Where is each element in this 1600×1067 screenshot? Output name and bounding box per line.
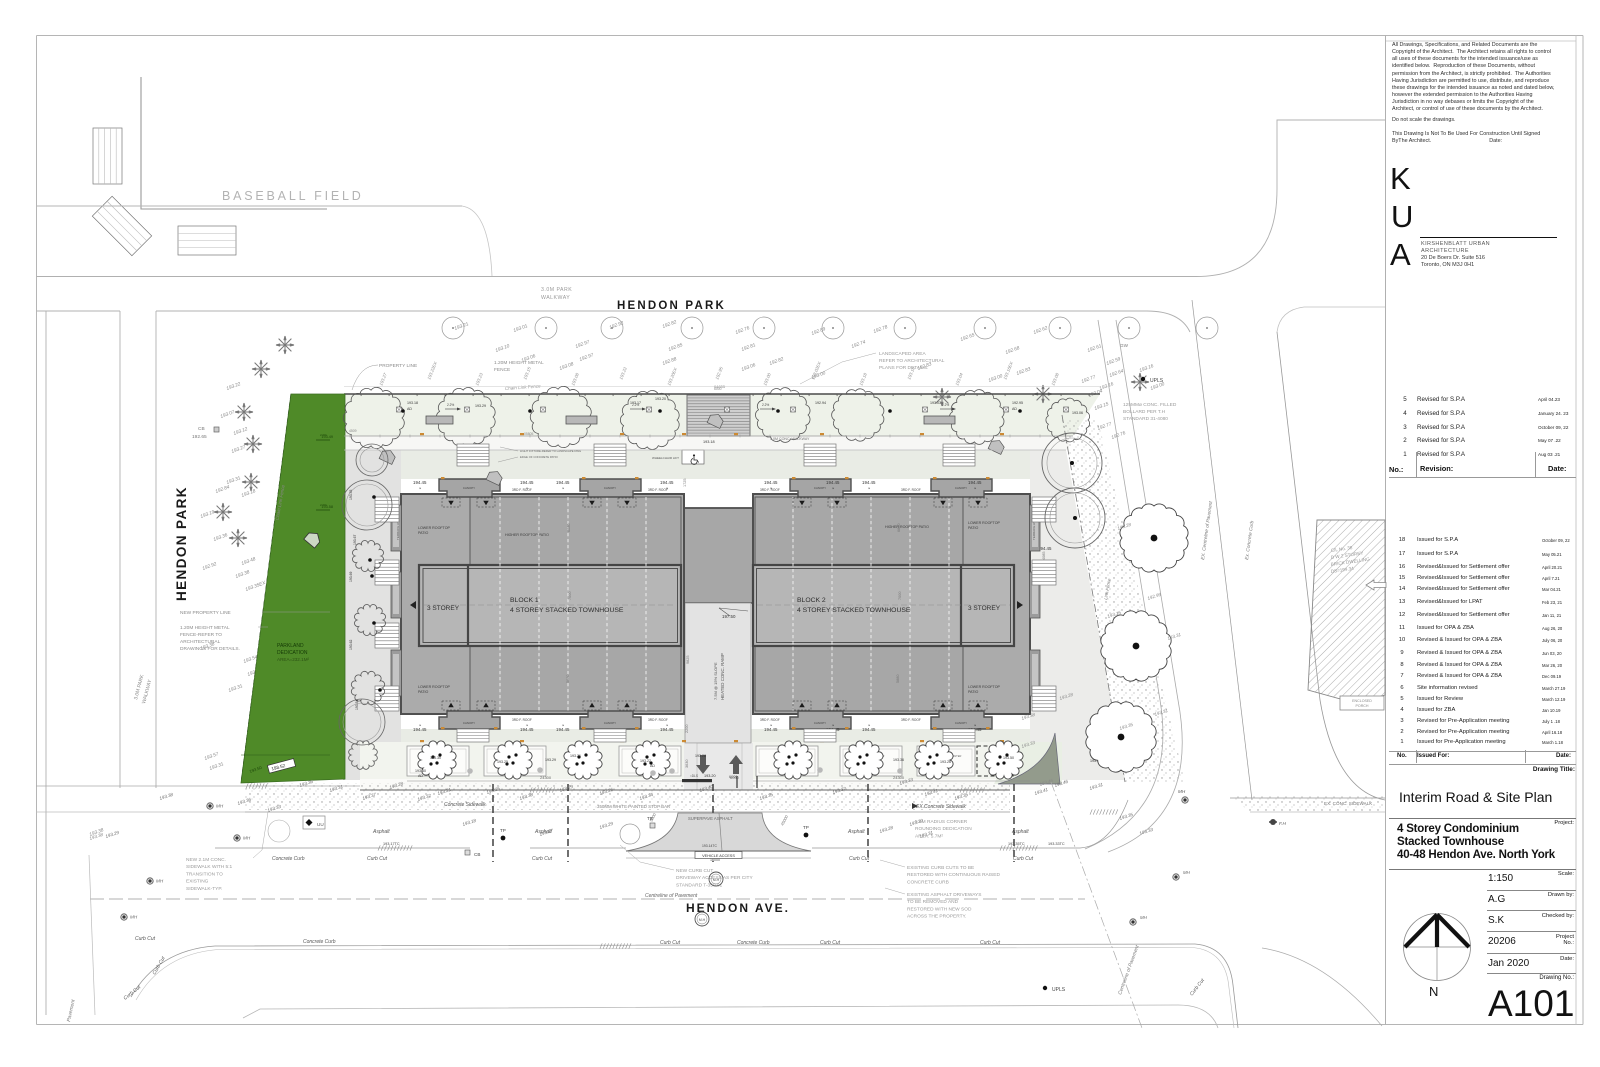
svg-text:UU: UU xyxy=(317,822,324,827)
svg-text:3RD F. ROOF: 3RD F. ROOF xyxy=(901,718,921,722)
svg-text:MH: MH xyxy=(243,836,251,841)
svg-text:4085: 4085 xyxy=(1042,552,1046,560)
svg-text:5880: 5880 xyxy=(896,675,900,683)
svg-text:Curb Cut: Curb Cut xyxy=(123,984,143,1001)
svg-text:3RD F. ROOF: 3RD F. ROOF xyxy=(648,488,668,492)
svg-text:192.92: 192.92 xyxy=(609,320,625,331)
svg-text:193.35EX: 193.35EX xyxy=(245,580,268,593)
svg-text:2200: 2200 xyxy=(685,725,689,733)
svg-text:PARKLAND: PARKLAND xyxy=(277,643,304,649)
svg-text:193.03: 193.03 xyxy=(930,401,941,405)
svg-text:CB: CB xyxy=(474,852,480,857)
svg-text:EDGE OF CONCRETE PATIO: EDGE OF CONCRETE PATIO xyxy=(520,455,559,459)
svg-text:Curb Cut: Curb Cut xyxy=(660,940,681,946)
svg-text:193.27: 193.27 xyxy=(378,372,388,387)
svg-text:194.45: 194.45 xyxy=(862,727,876,732)
svg-text:MH: MH xyxy=(130,915,138,920)
svg-text:5.0M RADIUS CORNER: 5.0M RADIUS CORNER xyxy=(915,819,968,825)
svg-text:193.22: 193.22 xyxy=(226,381,242,392)
svg-text:3 STOREY: 3 STOREY xyxy=(427,605,460,612)
svg-text:192.82: 192.82 xyxy=(662,319,678,330)
svg-text:193.31: 193.31 xyxy=(226,475,242,486)
svg-text:PLANS FOR DETAILS.: PLANS FOR DETAILS. xyxy=(879,365,929,371)
svg-text:193.57: 193.57 xyxy=(204,751,220,762)
svg-text:REFER TO ARCHITECTURAL: REFER TO ARCHITECTURAL xyxy=(879,358,945,364)
svg-text:192.65: 192.65 xyxy=(960,332,976,343)
svg-text:193.08: 193.08 xyxy=(570,372,580,387)
svg-text:192.77: 192.77 xyxy=(1081,374,1097,385)
svg-text:193.3​8: 193.3​8 xyxy=(159,792,174,801)
svg-text:6000: 6000 xyxy=(714,387,722,391)
svg-text:193.35: 193.35 xyxy=(1119,812,1134,821)
svg-text:24300: 24300 xyxy=(540,775,552,780)
svg-text:192.95: 192.95 xyxy=(1012,401,1023,405)
svg-text:193.12: 193.12 xyxy=(233,426,249,437)
svg-text:ARCHITECTURAL: ARCHITECTURAL xyxy=(180,639,221,645)
svg-text:192.97: 192.97 xyxy=(575,339,591,350)
svg-text:EXISTING CURB CUTS TO BE: EXISTING CURB CUTS TO BE xyxy=(907,865,974,871)
svg-text:CONCRETE CURB: CONCRETE CURB xyxy=(907,879,949,885)
svg-text:2.2%: 2.2% xyxy=(942,403,949,407)
svg-text:2.2%: 2.2% xyxy=(762,403,769,407)
svg-text:193.20: 193.20 xyxy=(655,397,666,401)
svg-text:1725: 1725 xyxy=(683,479,687,487)
svg-text:193.29: 193.29 xyxy=(599,821,614,830)
svg-text:6880: 6880 xyxy=(897,524,901,532)
svg-text:193.31: 193.31 xyxy=(209,761,225,772)
svg-text:194.45: 194.45 xyxy=(520,727,534,732)
svg-text:NEW CURB CUT: NEW CURB CUT xyxy=(676,868,713,874)
svg-text:193.55: 193.55 xyxy=(349,490,353,500)
svg-text:PORCH: PORCH xyxy=(1356,704,1369,708)
svg-text:BLOCK 1: BLOCK 1 xyxy=(510,597,539,604)
svg-text:193.31: 193.31 xyxy=(1167,632,1182,641)
svg-text:LOWER ROOFTOP: LOWER ROOFTOP xyxy=(968,685,1000,689)
svg-text:193.18: 193.18 xyxy=(241,488,257,499)
svg-text:193.29: 193.29 xyxy=(475,404,486,408)
svg-text:RESTORED WITH NEW SOD: RESTORED WITH NEW SOD xyxy=(907,906,972,912)
svg-text:3RD F. ROOF: 3RD F. ROOF xyxy=(901,488,921,492)
svg-text:193.30: 193.30 xyxy=(415,769,426,773)
svg-text:6000: 6000 xyxy=(730,775,740,780)
svg-text:350MM WHITE PAINTED STOP BAR: 350MM WHITE PAINTED STOP BAR xyxy=(597,804,670,809)
svg-text:LOWER ROOFTOP: LOWER ROOFTOP xyxy=(418,685,450,689)
svg-text:Curb Cut: Curb Cut xyxy=(367,856,388,862)
svg-text:PATIO: PATIO xyxy=(968,526,978,530)
svg-text:193.08: 193.08 xyxy=(559,361,575,372)
svg-text:TO BE REMOVED AND: TO BE REMOVED AND xyxy=(907,899,959,905)
svg-text:193.48: 193.48 xyxy=(241,556,257,567)
svg-text:Asphalt: Asphalt xyxy=(847,829,865,835)
svg-text:Curb Cut: Curb Cut xyxy=(152,955,168,976)
svg-text:HIGHER ROOFTOP PATIO: HIGHER ROOFTOP PATIO xyxy=(885,525,929,529)
svg-text:192.61: 192.61 xyxy=(1087,343,1103,354)
svg-text:2.2%: 2.2% xyxy=(632,403,639,407)
svg-text:5880: 5880 xyxy=(566,675,570,683)
svg-text:125MMø CONC. FILLED: 125MMø CONC. FILLED xyxy=(1123,402,1177,408)
svg-text:193.22: 193.22 xyxy=(618,366,628,381)
svg-text:193.25: 193.25 xyxy=(497,760,508,764)
svg-text:193.18: 193.18 xyxy=(462,818,477,827)
svg-text:45000: 45000 xyxy=(779,814,789,827)
svg-text:194.45: 194.45 xyxy=(968,480,982,485)
svg-text:UPLS: UPLS xyxy=(1150,378,1164,384)
svg-text:4509: 4509 xyxy=(349,429,357,433)
svg-text:192.84: 192.84 xyxy=(215,484,231,495)
svg-text:193.31: 193.31 xyxy=(228,683,244,694)
svg-text:193.69: 193.69 xyxy=(349,572,353,582)
svg-text:192.99: 192.99 xyxy=(1147,592,1162,601)
svg-text:VEHICLE ACCESS: VEHICLE ACCESS xyxy=(702,854,735,858)
svg-text:193.36: 193.36 xyxy=(213,532,229,543)
svg-text:194.45: 194.45 xyxy=(520,480,534,485)
svg-text:Centreline of Pavement: Centreline of Pavement xyxy=(645,893,698,899)
svg-text:193.01: 193.01 xyxy=(513,323,529,334)
svg-text:SIDEWALK-TYP.: SIDEWALK-TYP. xyxy=(186,886,222,892)
svg-text:SIDEWALK WITH 5:1: SIDEWALK WITH 5:1 xyxy=(186,864,233,870)
svg-text:DRAWINGS FOR DETAILS.: DRAWINGS FOR DETAILS. xyxy=(180,646,240,652)
svg-text:CANOPY: CANOPY xyxy=(604,486,616,490)
svg-text:194.45: 194.45 xyxy=(764,727,778,732)
svg-text:LOWER ROOFTOP: LOWER ROOFTOP xyxy=(418,526,450,530)
svg-text:194.45: 194.45 xyxy=(660,727,674,732)
svg-text:EXISTING ASPHALT DRIVEWAYS: EXISTING ASPHALT DRIVEWAYS xyxy=(907,892,981,898)
svg-text:193.20EX: 193.20EX xyxy=(666,367,678,386)
svg-text:HEATED CONC. RAMP: HEATED CONC. RAMP xyxy=(720,653,725,700)
svg-text:193.00: 193.00 xyxy=(762,372,772,387)
svg-text:194.45: 194.45 xyxy=(413,480,427,485)
svg-text:6880: 6880 xyxy=(567,524,571,532)
svg-text:193.31: 193.31 xyxy=(1089,782,1104,791)
svg-text:WHEELCHAIR LIFT: WHEELCHAIR LIFT xyxy=(652,456,679,460)
svg-text:7.5M @ 15% SLOPE: 7.5M @ 15% SLOPE xyxy=(713,662,718,700)
svg-text:TRANSITION TO: TRANSITION TO xyxy=(186,871,223,877)
svg-text:4 STOREY STACKED TOWNHOUSE: 4 STOREY STACKED TOWNHOUSE xyxy=(797,607,911,614)
svg-text:BOLLARD PER T.H: BOLLARD PER T.H xyxy=(1123,409,1166,415)
svg-text:AD: AD xyxy=(407,407,412,411)
svg-text:FENCE-REFER TO: FENCE-REFER TO xyxy=(180,632,222,638)
svg-text:CANOPY: CANOPY xyxy=(814,721,826,725)
svg-text:193.38: 193.38 xyxy=(235,569,251,580)
svg-text:193.19: 193.19 xyxy=(200,509,216,520)
svg-text:192.92: 192.92 xyxy=(202,561,218,572)
svg-text:Asphalt: Asphalt xyxy=(372,829,390,835)
svg-text:7000: 7000 xyxy=(568,592,572,600)
svg-text:HENDON PARK: HENDON PARK xyxy=(617,300,726,312)
svg-text:192.65: 192.65 xyxy=(192,434,207,440)
svg-text:3 STOREY: 3 STOREY xyxy=(968,605,1001,612)
svg-text:FENCE: FENCE xyxy=(494,367,510,373)
svg-text:193.06: 193.06 xyxy=(741,362,757,373)
svg-text:3.0M CONC. WALKWAY: 3.0M CONC. WALKWAY xyxy=(770,437,810,441)
svg-text:3RD F. ROOF: 3RD F. ROOF xyxy=(648,718,668,722)
svg-text:7000: 7000 xyxy=(898,592,902,600)
svg-text:192.95: 192.95 xyxy=(714,366,724,381)
svg-text:3RD F. ROOF: 3RD F. ROOF xyxy=(512,488,532,492)
svg-text:194.45: 194.45 xyxy=(556,727,570,732)
svg-text:CB: CB xyxy=(198,426,205,432)
svg-text:194.45: 194.45 xyxy=(862,480,876,485)
svg-text:MH: MH xyxy=(1140,915,1148,920)
svg-text:×: × xyxy=(562,486,565,491)
svg-text:194.45: 194.45 xyxy=(413,727,427,732)
svg-text:192.94: 192.94 xyxy=(815,401,826,405)
svg-text:UPLS: UPLS xyxy=(1052,987,1066,993)
svg-text:193.20: 193.20 xyxy=(704,774,716,778)
svg-text:CANOPY: CANOPY xyxy=(955,721,967,725)
svg-text:AD: AD xyxy=(650,764,655,768)
svg-text:EX. Centreline of Pavement: EX. Centreline of Pavement xyxy=(1200,500,1214,560)
svg-text:F.H: F.H xyxy=(1279,821,1286,826)
svg-text:192.74: 192.74 xyxy=(851,339,867,350)
svg-text:TB: TB xyxy=(647,816,653,821)
svg-text:Ex. Concrete Curb: Ex. Concrete Curb xyxy=(1244,520,1255,560)
svg-text:NEW 2.1M CONC.: NEW 2.1M CONC. xyxy=(186,857,226,863)
svg-text:193.35TC: 193.35TC xyxy=(1008,842,1025,846)
svg-text:ACROSS THE PROPERTY.: ACROSS THE PROPERTY. xyxy=(907,914,967,920)
svg-text:193.36: 193.36 xyxy=(893,758,904,762)
svg-text:194.45: 194.45 xyxy=(660,480,674,485)
svg-text:Concrete Curb: Concrete Curb xyxy=(272,856,305,862)
svg-text:GW: GW xyxy=(1120,343,1129,348)
svg-text:2.2%: 2.2% xyxy=(447,403,454,407)
svg-text:PATIO: PATIO xyxy=(968,690,978,694)
svg-text:LIGHT FIXTURE-REFER TO LANDSCA: LIGHT FIXTURE-REFER TO LANDSCAPE DWG xyxy=(520,449,581,453)
svg-text:×: × xyxy=(868,486,871,491)
svg-text:193.23: 193.23 xyxy=(474,372,484,387)
svg-text:MH: MH xyxy=(1183,870,1191,875)
svg-text:Curb Cut: Curb Cut xyxy=(849,856,870,862)
svg-text:Curb Cut: Curb Cut xyxy=(1013,856,1034,862)
svg-text:EX. CONC. SIDEWALK: EX. CONC. SIDEWALK xyxy=(1324,801,1373,806)
svg-text:BLOCK 2: BLOCK 2 xyxy=(797,597,826,604)
svg-text:193.18: 193.18 xyxy=(703,440,715,444)
svg-text:193.18: 193.18 xyxy=(407,401,418,405)
svg-text:193.21: 193.21 xyxy=(570,754,581,758)
svg-text:1.20M HEIGHT METAL: 1.20M HEIGHT METAL xyxy=(494,360,544,366)
svg-text:STANDARD T-350.01: STANDARD T-350.01 xyxy=(676,882,723,888)
svg-text:193.16EX: 193.16EX xyxy=(1002,361,1014,380)
svg-text:9825: 9825 xyxy=(686,656,690,664)
svg-text:CANOPY: CANOPY xyxy=(463,486,475,490)
svg-text:EXISTING: EXISTING xyxy=(186,879,209,885)
svg-text:193.28: 193.28 xyxy=(695,754,706,758)
svg-text:193.17TC: 193.17TC xyxy=(383,842,400,846)
svg-text:192.76: 192.76 xyxy=(1111,430,1127,441)
svg-text:192.88: 192.88 xyxy=(662,356,678,367)
svg-text:194.45: 194.45 xyxy=(556,480,570,485)
svg-text:197.50: 197.50 xyxy=(722,614,736,619)
svg-text:2.0%: 2.0% xyxy=(320,433,327,437)
svg-text:CANOPY: CANOPY xyxy=(463,721,475,725)
svg-text:Curb Cut: Curb Cut xyxy=(532,856,553,862)
svg-text:4 STOREY STACKED TOWNHOUSE: 4 STOREY STACKED TOWNHOUSE xyxy=(510,607,624,614)
svg-text:Curb Cut: Curb Cut xyxy=(135,936,156,942)
svg-text:AREA=232.1M²: AREA=232.1M² xyxy=(277,657,310,662)
svg-text:MH: MH xyxy=(1178,789,1186,794)
svg-text:LOWER ROOFTOP: LOWER ROOFTOP xyxy=(968,521,1000,525)
svg-text:Curb Cut: Curb Cut xyxy=(820,940,841,946)
svg-text:193.14TC: 193.14TC xyxy=(702,844,717,848)
svg-text:192.85: 192.85 xyxy=(668,342,684,353)
svg-text:EX.Concrete Sidewalk: EX.Concrete Sidewalk xyxy=(916,804,966,810)
svg-text:2.0%: 2.0% xyxy=(320,503,327,507)
svg-text:ENCLOSED: ENCLOSED xyxy=(1352,699,1372,703)
svg-text:AD: AD xyxy=(1012,407,1017,411)
svg-text:CANOPY: CANOPY xyxy=(955,486,967,490)
svg-text:192.78: 192.78 xyxy=(873,324,889,335)
svg-text:ROUNDING DEDICATION: ROUNDING DEDICATION xyxy=(915,826,972,832)
svg-text:193.04: 193.04 xyxy=(954,372,964,387)
svg-text:CANOPY: CANOPY xyxy=(814,486,826,490)
svg-text:192.81: 192.81 xyxy=(741,342,757,353)
svg-text:Concrete Sidewalk: Concrete Sidewalk xyxy=(444,802,486,808)
svg-text:193.07: 193.07 xyxy=(220,409,236,420)
svg-text:HIGHER ROOFTOP PATIO: HIGHER ROOFTOP PATIO xyxy=(505,533,549,537)
svg-text:TP: TP xyxy=(500,828,506,833)
svg-text:STANDARD 31-4080: STANDARD 31-4080 xyxy=(1123,416,1168,422)
svg-text:193.67: 193.67 xyxy=(353,535,357,545)
svg-text:193.22: 193.22 xyxy=(640,759,651,763)
svg-text:193.10: 193.10 xyxy=(495,343,511,354)
svg-text:SUPERPAVE ASPHALT: SUPERPAVE ASPHALT xyxy=(688,816,733,821)
svg-text:Curb Cut: Curb Cut xyxy=(980,940,1001,946)
svg-text:192.82: 192.82 xyxy=(769,356,785,367)
svg-text:DEDICATION: DEDICATION xyxy=(277,650,308,656)
svg-text:1.20M HEIGHT METAL: 1.20M HEIGHT METAL xyxy=(180,625,230,631)
svg-text:193.27: 193.27 xyxy=(231,444,247,455)
svg-text:193.22EX: 193.22EX xyxy=(426,361,438,380)
svg-text:Asphalt: Asphalt xyxy=(1011,829,1029,835)
svg-text:193.15: 193.15 xyxy=(522,366,532,381)
svg-text:WALKWAY: WALKWAY xyxy=(541,295,570,301)
svg-text:193.29: 193.29 xyxy=(105,830,120,839)
svg-text:PATIO: PATIO xyxy=(418,531,428,535)
svg-text:193.54: 193.54 xyxy=(355,700,359,710)
svg-text:Concrete Curb: Concrete Curb xyxy=(303,939,336,945)
svg-text:Curb Cut: Curb Cut xyxy=(1189,977,1206,997)
svg-text:194.45: 194.45 xyxy=(764,480,778,485)
svg-text:192.64: 192.64 xyxy=(1109,368,1125,379)
svg-text:M.H: M.H xyxy=(699,918,706,922)
svg-text:3RD F. ROOF: 3RD F. ROOF xyxy=(760,718,780,722)
svg-text:3.0M PARK: 3.0M PARK xyxy=(541,287,572,293)
svg-text:TP: TP xyxy=(803,825,809,830)
svg-text:≈DLS: ≈DLS xyxy=(690,774,698,778)
svg-text:AD: AD xyxy=(418,774,423,778)
svg-text:193.30: 193.30 xyxy=(430,756,441,760)
svg-text:Concrete Curb: Concrete Curb xyxy=(737,940,770,946)
svg-text:193.33TC: 193.33TC xyxy=(1048,842,1065,846)
svg-text:194.45: 194.45 xyxy=(826,480,840,485)
svg-text:BASEBALL FIELD: BASEBALL FIELD xyxy=(222,189,364,203)
svg-text:193.26: 193.26 xyxy=(940,760,951,764)
svg-text:HENDON PARK: HENDON PARK xyxy=(174,486,189,601)
svg-text:193.21: 193.21 xyxy=(454,321,470,332)
svg-text:RESTORED WITH CONTINUOUS RAISE: RESTORED WITH CONTINUOUS RAISED xyxy=(907,872,1000,878)
svg-text:LANDSCAPED AREA: LANDSCAPED AREA xyxy=(879,351,926,357)
svg-text:193.62: 193.62 xyxy=(349,640,353,650)
svg-text:192.77: 192.77 xyxy=(1097,421,1113,432)
svg-text:193.15: 193.15 xyxy=(1094,401,1110,412)
svg-text:AREA: 5.7M²: AREA: 5.7M² xyxy=(915,833,943,839)
svg-text:193.06: 193.06 xyxy=(1072,411,1083,415)
svg-text:PATIO: PATIO xyxy=(418,690,428,694)
svg-text:3RD F. ROOF: 3RD F. ROOF xyxy=(760,488,780,492)
svg-text:192.62: 192.62 xyxy=(1033,325,1049,336)
svg-text:HENDON AVE.: HENDON AVE. xyxy=(686,901,790,915)
svg-text:CANOPY: CANOPY xyxy=(604,721,616,725)
svg-text:3630: 3630 xyxy=(685,760,689,768)
svg-text:05805: 05805 xyxy=(524,432,534,436)
svg-text:3RD F. ROOF: 3RD F. ROOF xyxy=(512,718,532,722)
svg-text:193.18: 193.18 xyxy=(858,372,868,387)
svg-text:Chain Link Fence: Chain Link Fence xyxy=(505,383,541,391)
svg-text:193.08: 193.08 xyxy=(1050,372,1060,387)
svg-text:PROPERTY LINE: PROPERTY LINE xyxy=(379,363,417,369)
svg-text:193.16: 193.16 xyxy=(1139,363,1155,374)
svg-text:192.76: 192.76 xyxy=(735,325,751,336)
svg-text:192.59: 192.59 xyxy=(1106,356,1122,367)
svg-text:NEW PROPERTY LINE: NEW PROPERTY LINE xyxy=(180,610,231,616)
svg-text:193.50: 193.50 xyxy=(1003,756,1014,760)
svg-text:193.28: 193.28 xyxy=(879,825,894,834)
svg-text:193.29: 193.29 xyxy=(545,758,556,762)
svg-text:192.97: 192.97 xyxy=(579,352,595,363)
svg-text:192.68: 192.68 xyxy=(1005,345,1021,356)
svg-text:Pavement: Pavement xyxy=(66,999,77,1023)
svg-text:M.H: M.H xyxy=(713,878,720,882)
svg-text:×: × xyxy=(419,486,422,491)
svg-text:MH: MH xyxy=(156,879,164,884)
svg-text:MH: MH xyxy=(216,804,224,809)
svg-text:192.83: 192.83 xyxy=(1016,366,1032,377)
